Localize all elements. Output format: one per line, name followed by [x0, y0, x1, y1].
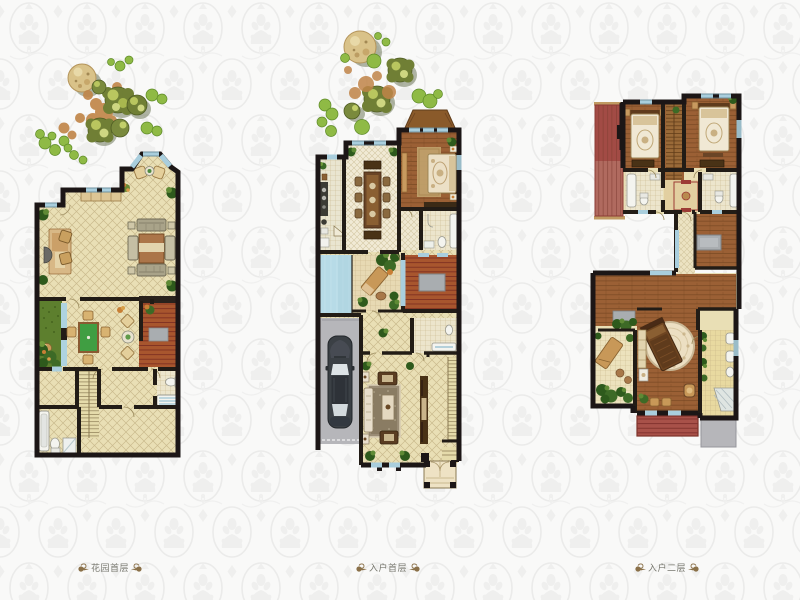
svg-text:花园首层: 花园首层	[91, 562, 129, 573]
svg-text:入户二层: 入户二层	[648, 562, 686, 573]
svg-text:入户首层: 入户首层	[369, 562, 407, 573]
